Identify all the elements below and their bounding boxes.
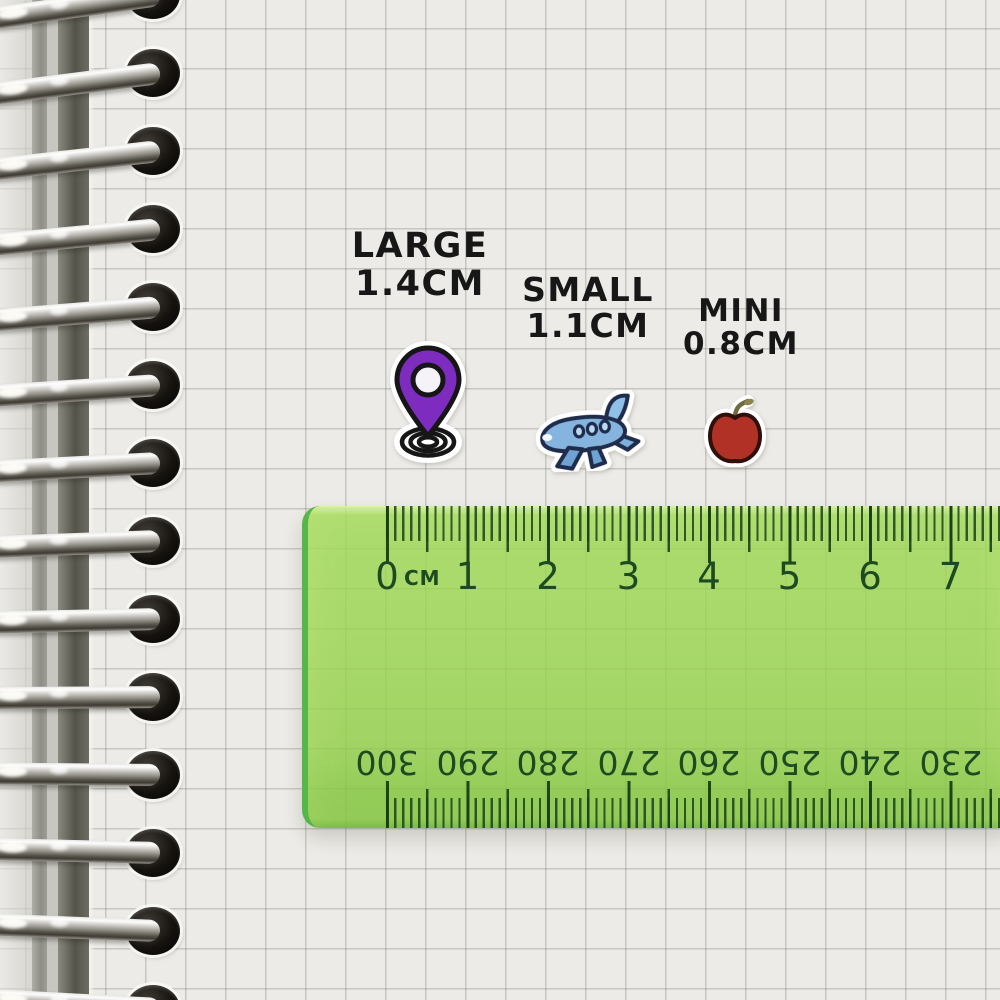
- label-small-size: 1.1CM: [508, 308, 668, 344]
- ruler-cm-number: 7: [909, 555, 993, 598]
- location-pin-icon: [383, 341, 473, 467]
- airplane-sticker: [532, 389, 651, 473]
- airplane-icon: [532, 389, 651, 473]
- notebook-photo: LARGE 1.4CM SMALL 1.1CM MINI 0.8CM: [0, 0, 1000, 1000]
- ruler-cm-number: 3: [587, 555, 671, 598]
- ruler-mm-number: 240: [828, 743, 912, 782]
- label-large-size: 1.4CM: [330, 266, 510, 304]
- ruler-mm-number: 260: [667, 743, 751, 782]
- ruler-cm-number: 5: [748, 555, 832, 598]
- binder-ring: [0, 608, 160, 634]
- label-mini: MINI 0.8CM: [660, 295, 822, 362]
- ruler-cm-number: 1: [426, 555, 510, 598]
- binder-ring: [0, 838, 160, 864]
- label-large: LARGE 1.4CM: [330, 228, 510, 304]
- ruler-cm-number: 2: [506, 555, 590, 598]
- label-small: SMALL 1.1CM: [508, 272, 668, 343]
- binder-ring: [0, 686, 160, 709]
- ruler-mm-number: 280: [506, 743, 590, 782]
- ruler-cm-number: 0: [345, 555, 429, 598]
- ruler-mm-number: 230: [909, 743, 993, 782]
- ruler-mm-number: 300: [345, 743, 429, 782]
- ruler-cm-number: 4: [667, 555, 751, 598]
- label-mini-name: MINI: [660, 295, 822, 328]
- binder-ring: [0, 762, 160, 786]
- label-large-name: LARGE: [330, 228, 510, 266]
- ruler-mm-number: 290: [426, 743, 510, 782]
- label-mini-size: 0.8CM: [660, 328, 822, 361]
- apple-sticker: [702, 395, 768, 467]
- label-small-name: SMALL: [508, 272, 668, 308]
- location-pin-sticker: [383, 341, 473, 467]
- ruler-cm-number: 6: [828, 555, 912, 598]
- ruler-ticks-bottom-cm: [386, 781, 1000, 828]
- ruler-mm-number: 270: [587, 743, 671, 782]
- ruler-mm-number: 250: [748, 743, 832, 782]
- ruler: CM 01234567 300290280270260250240230: [302, 506, 1000, 828]
- apple-icon: [702, 395, 768, 467]
